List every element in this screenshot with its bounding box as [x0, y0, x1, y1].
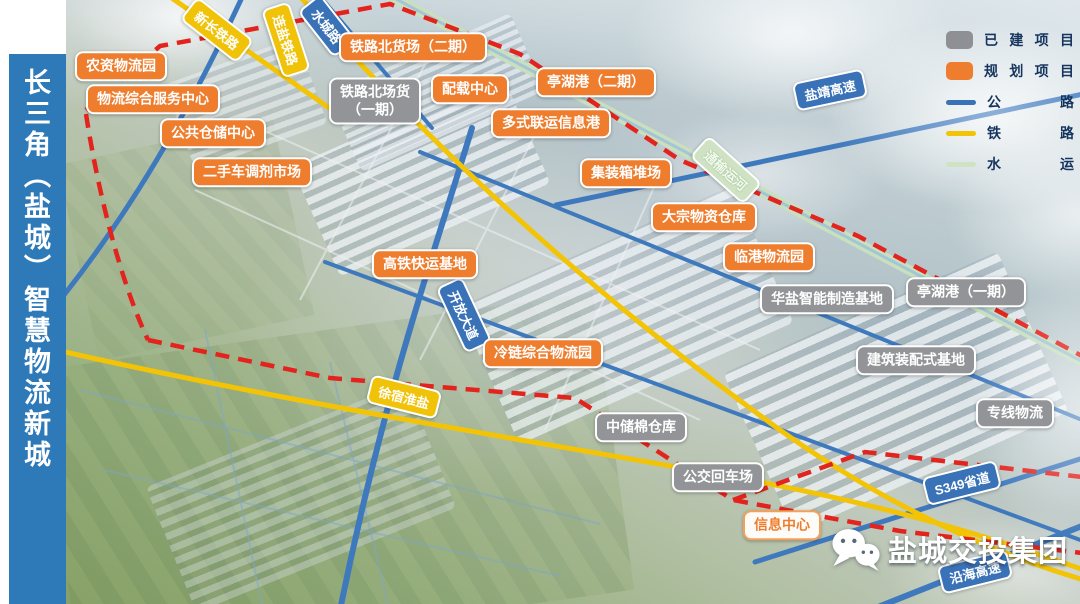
legend-label: 公路	[987, 92, 1074, 112]
waterway-name-label: 通榆运河	[690, 135, 763, 205]
railway-line-swatch	[946, 131, 976, 136]
facility-label-planned: 大宗物资仓库	[651, 202, 757, 232]
legend-label: 铁路	[987, 123, 1074, 143]
facility-label-planned: 物流综合服务中心	[86, 84, 220, 114]
legend-label: 规划项目	[984, 61, 1074, 81]
facility-label-built: 铁路北场货 （一期）	[329, 78, 421, 125]
title-char: 慧	[24, 316, 51, 347]
title-char: ︵	[24, 161, 51, 192]
waterway-line-swatch	[946, 162, 976, 167]
facility-label-planned: 冷链综合物流园	[483, 338, 603, 368]
facility-label-planned: 亭湖港（二期）	[536, 67, 656, 97]
facility-label-highlight: 信息中心	[743, 510, 821, 540]
wechat-icon	[830, 524, 882, 574]
facility-label-planned: 农资物流园	[75, 51, 167, 81]
title-char: 城	[24, 440, 51, 471]
highway-line-swatch	[946, 100, 976, 105]
facility-label-built: 建筑装配式基地	[856, 345, 976, 375]
facility-label-built: 公交回车场	[672, 462, 764, 492]
title-char: 角	[24, 130, 51, 161]
facility-label-planned: 公共仓储中心	[160, 118, 266, 148]
facility-label-planned: 铁路北货场（二期）	[339, 32, 487, 62]
facility-label-built: 亭湖港（一期）	[906, 277, 1026, 307]
legend-row-built: 已建项目	[946, 30, 1074, 50]
title-char: 长	[24, 68, 51, 99]
facility-label-planned: 高铁快运基地	[372, 249, 478, 279]
highway-name-label: 盐靖高速	[792, 68, 868, 111]
title-char: 三	[24, 99, 51, 130]
map-legend: 已建项目 规划项目 公路 铁路 水运	[946, 30, 1074, 185]
title-char: 盐	[24, 192, 51, 223]
facility-label-planned: 集装箱堆场	[580, 158, 672, 188]
aerial-map: 新长铁路连盐铁路水城路盐靖高速通榆运河开放大道徐宿淮盐S349省道沿海高速农资物…	[66, 0, 1080, 604]
brand-name: 盐城交投集团	[888, 528, 1068, 570]
title-char: ︶	[24, 254, 51, 285]
title-char: 城	[24, 223, 51, 254]
railway-name-label: 徐宿淮盐	[366, 374, 443, 420]
title-char: 新	[24, 409, 51, 440]
legend-label: 水运	[987, 154, 1074, 174]
poster-map: 长三角︵盐城︶智慧物流新城	[0, 0, 1080, 604]
brand-watermark: 盐城交投集团	[830, 524, 1068, 574]
facility-label-planned: 配载中心	[431, 74, 509, 104]
built-project-swatch	[946, 31, 973, 49]
facility-label-built: 专线物流	[976, 398, 1054, 428]
facility-label-built: 中储棉仓库	[595, 412, 687, 442]
title-char: 智	[24, 285, 51, 316]
legend-label: 已建项目	[984, 30, 1074, 50]
labels-layer: 新长铁路连盐铁路水城路盐靖高速通榆运河开放大道徐宿淮盐S349省道沿海高速农资物…	[66, 0, 1080, 604]
title-char: 流	[24, 378, 51, 409]
facility-label-built: 华盐智能制造基地	[760, 284, 894, 314]
legend-row-planned: 规划项目	[946, 61, 1074, 81]
legend-row-waterway: 水运	[946, 154, 1074, 174]
railway-name-label: 新长铁路	[180, 0, 255, 64]
legend-row-railway: 铁路	[946, 123, 1074, 143]
highway-name-label: S349省道	[921, 460, 1002, 507]
planned-project-swatch	[946, 62, 973, 80]
vertical-title-bar: 长三角︵盐城︶智慧物流新城	[9, 54, 66, 604]
facility-label-planned: 二手车调剂市场	[192, 157, 312, 187]
legend-row-highway: 公路	[946, 92, 1074, 112]
title-char: 物	[24, 347, 51, 378]
facility-label-planned: 临港物流园	[723, 242, 815, 272]
facility-label-planned: 多式联运信息港	[491, 108, 611, 138]
